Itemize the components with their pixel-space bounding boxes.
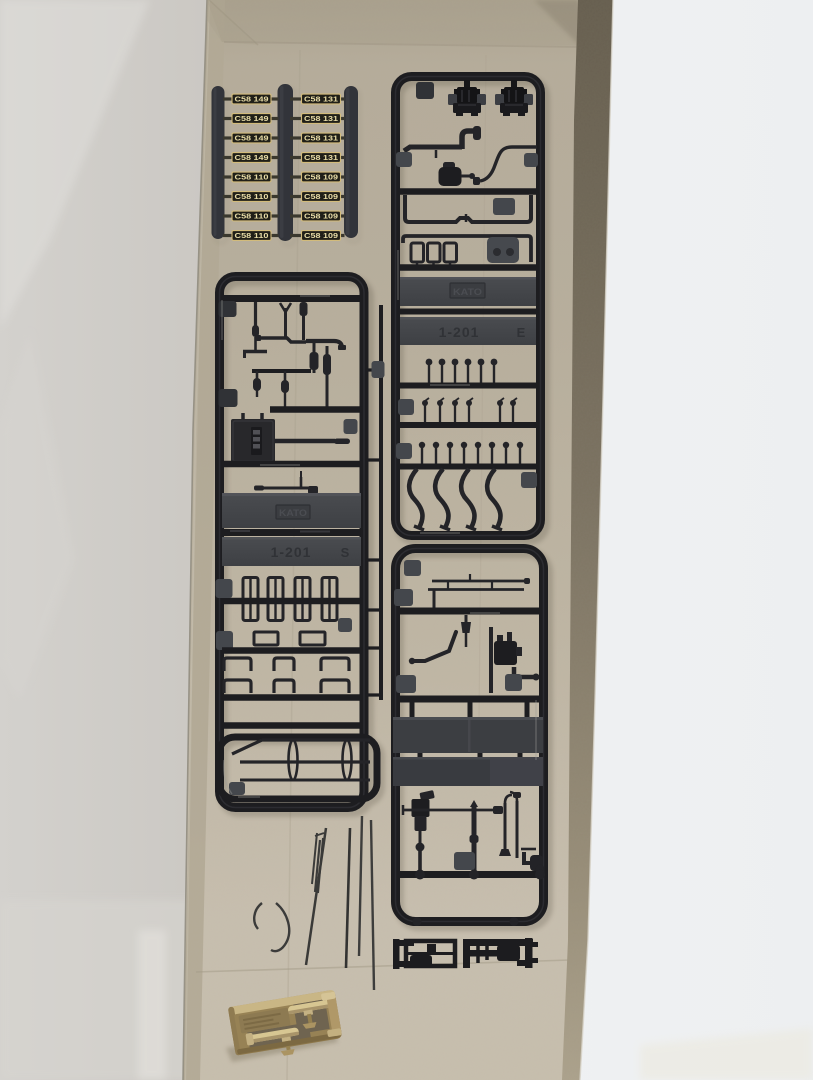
svg-text:C58 110: C58 110 — [235, 212, 269, 221]
svg-text:C58 131: C58 131 — [304, 95, 338, 104]
svg-text:C58 149: C58 149 — [235, 114, 269, 123]
svg-text:C58 109: C58 109 — [304, 212, 338, 221]
svg-text:C58 110: C58 110 — [235, 231, 269, 240]
svg-text:C58 149: C58 149 — [235, 153, 269, 162]
svg-text:KATO: KATO — [279, 508, 307, 518]
svg-text:1-201: 1-201 — [271, 544, 312, 560]
svg-text:S: S — [341, 545, 350, 560]
svg-text:C58 131: C58 131 — [304, 134, 338, 143]
svg-text:C58 131: C58 131 — [304, 114, 338, 123]
svg-text:C58 109: C58 109 — [304, 192, 338, 201]
svg-text:C58 110: C58 110 — [235, 192, 269, 201]
svg-text:C58 109: C58 109 — [304, 173, 338, 182]
svg-text:1-201: 1-201 — [439, 324, 480, 340]
svg-text:C58 109: C58 109 — [304, 231, 338, 240]
svg-text:C58 110: C58 110 — [235, 173, 269, 182]
svg-text:E: E — [517, 325, 526, 340]
svg-text:C58 149: C58 149 — [235, 134, 269, 143]
svg-text:KATO: KATO — [453, 287, 482, 298]
svg-text:C58 131: C58 131 — [304, 153, 338, 162]
svg-text:C58 149: C58 149 — [235, 95, 269, 104]
